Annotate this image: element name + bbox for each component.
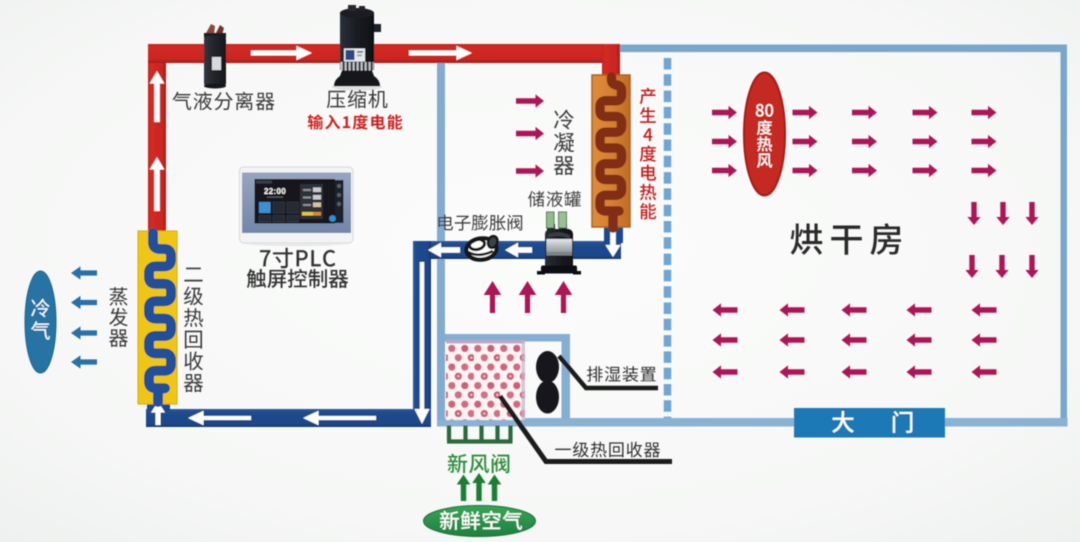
svg-text:22:00: 22:00 [264, 187, 286, 196]
